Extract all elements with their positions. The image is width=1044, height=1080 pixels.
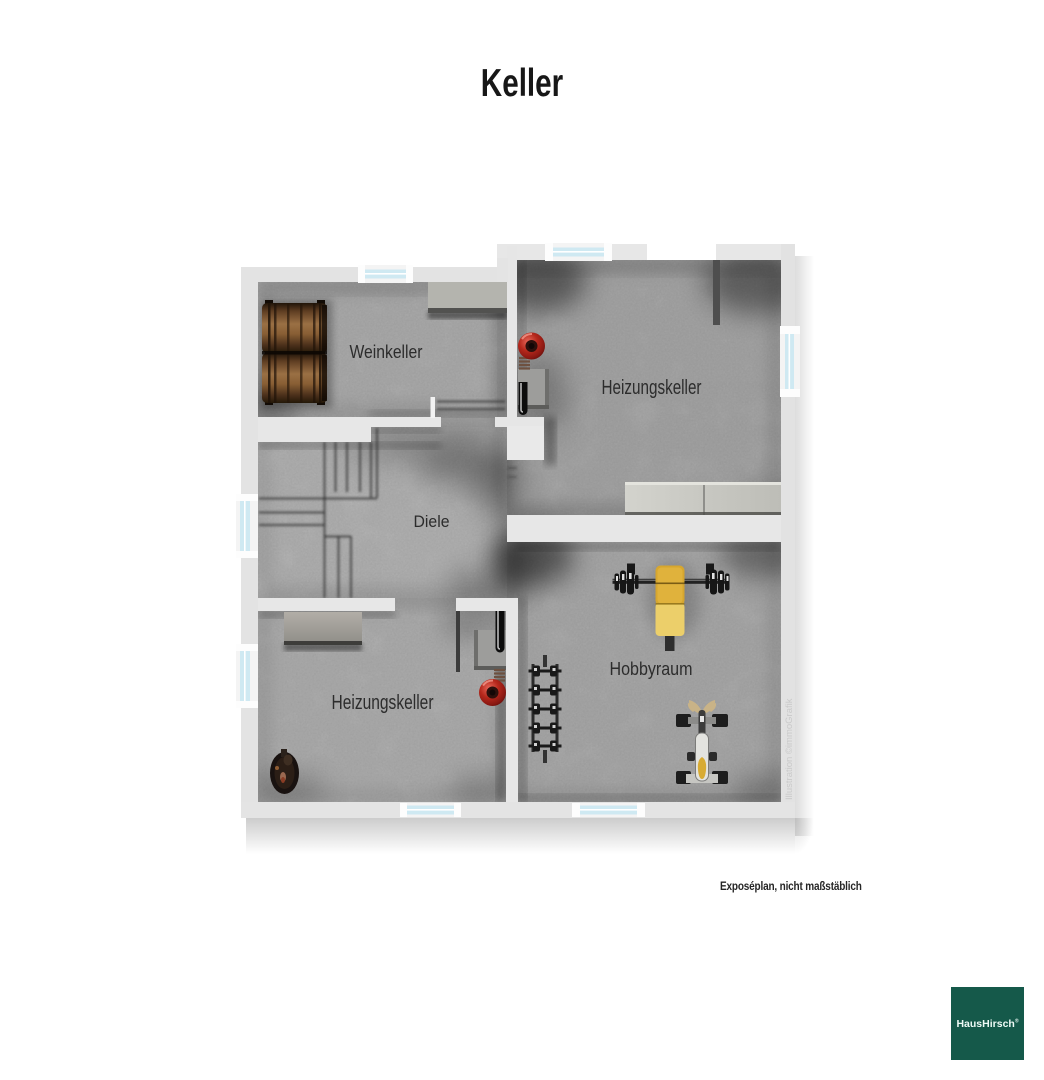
svg-text:Weinkeller: Weinkeller — [350, 341, 423, 362]
svg-text:Hobbyraum: Hobbyraum — [610, 658, 693, 679]
svg-text:Illustration ©immoGrafik: Illustration ©immoGrafik — [784, 698, 795, 800]
svg-text:Heizungskeller: Heizungskeller — [602, 377, 702, 399]
svg-text:Diele: Diele — [414, 512, 450, 531]
svg-text:Heizungskeller: Heizungskeller — [332, 692, 434, 714]
